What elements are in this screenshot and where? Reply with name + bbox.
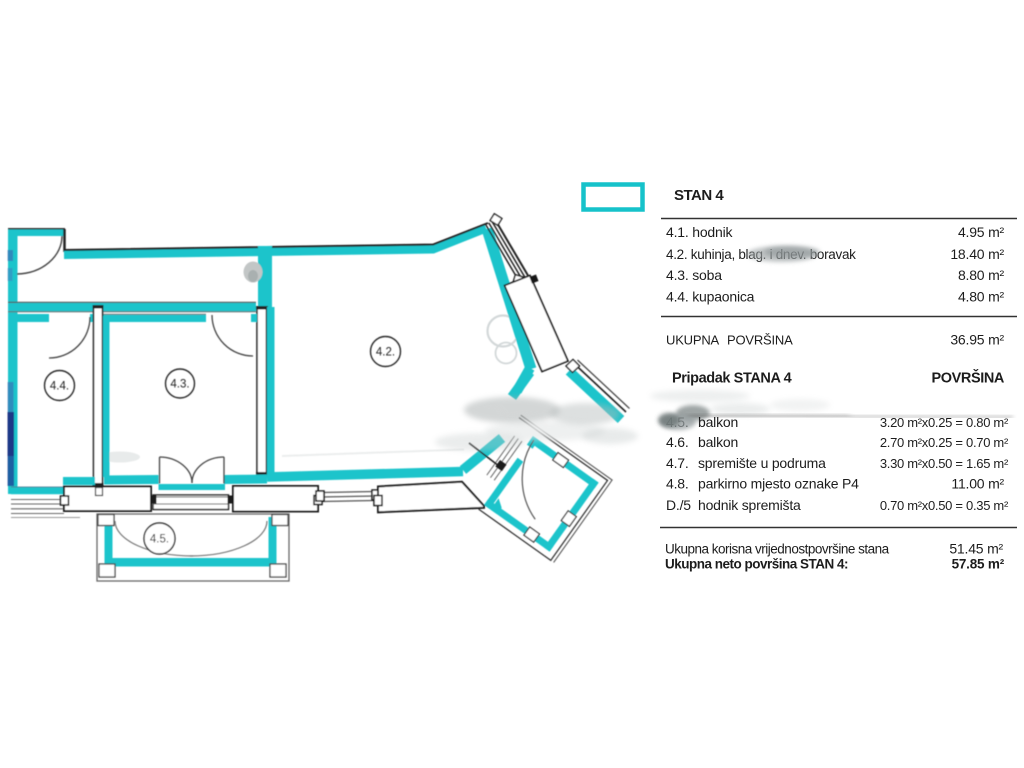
svg-text:3.20 m²x0.25 = 0.80 m²: 3.20 m²x0.25 = 0.80 m² [880, 415, 1009, 430]
svg-text:0.70 m²x0.50 = 0.35 m²: 0.70 m²x0.50 = 0.35 m² [880, 498, 1009, 513]
svg-text:spremište u podruma: spremište u podruma [698, 455, 826, 471]
svg-text:4.6.: 4.6. [666, 434, 689, 450]
svg-text:11.00 m²: 11.00 m² [951, 476, 1004, 492]
svg-text:4.7.: 4.7. [666, 455, 689, 471]
svg-text:4.5.: 4.5. [150, 534, 169, 546]
svg-text:4.4. kupaonica: 4.4. kupaonica [666, 288, 755, 304]
svg-text:4.4.: 4.4. [50, 381, 69, 393]
svg-text:57.85 m²: 57.85 m² [952, 557, 1005, 572]
svg-text:Pripadak STANA 4: Pripadak STANA 4 [672, 371, 792, 387]
svg-text:4.1. hodnik: 4.1. hodnik [666, 224, 733, 240]
svg-text:2.70 m²x0.25 = 0.70 m²: 2.70 m²x0.25 = 0.70 m² [880, 435, 1009, 450]
svg-text:4.8.: 4.8. [666, 476, 689, 492]
svg-text:hodnik spremišta: hodnik spremišta [698, 497, 801, 513]
svg-text:4.2.: 4.2. [376, 347, 395, 359]
svg-text:8.80 m²: 8.80 m² [958, 267, 1005, 283]
svg-text:Ukupna korisna vrijednostpovrš: Ukupna korisna vrijednostpovršine stana [665, 541, 890, 556]
svg-text:UKUPNA: UKUPNA [666, 332, 720, 347]
svg-text:3.30 m²x0.50 = 1.65 m²: 3.30 m²x0.50 = 1.65 m² [880, 456, 1009, 471]
svg-text:POVRŠINA: POVRŠINA [931, 369, 1004, 387]
svg-text:4.3.: 4.3. [170, 379, 189, 391]
svg-text:STAN 4: STAN 4 [674, 187, 724, 204]
svg-text:18.40 m²: 18.40 m² [950, 246, 1004, 262]
svg-text:balkon: balkon [698, 434, 738, 450]
svg-text:4.80 m²: 4.80 m² [958, 288, 1005, 304]
svg-text:balkon: balkon [698, 414, 738, 430]
svg-text:parkirno mjesto oznake P4: parkirno mjesto oznake P4 [698, 476, 859, 492]
svg-text:51.45 m²: 51.45 m² [949, 540, 1003, 556]
svg-text:D./5: D./5 [666, 497, 691, 513]
svg-text:POVRŠINA: POVRŠINA [727, 332, 793, 347]
svg-text:4.3. soba: 4.3. soba [666, 267, 722, 283]
svg-text:Ukupna neto površina STAN 4:: Ukupna neto površina STAN 4: [665, 557, 848, 572]
svg-text:4.95 m²: 4.95 m² [958, 224, 1005, 240]
svg-text:36.95 m²: 36.95 m² [950, 331, 1004, 347]
